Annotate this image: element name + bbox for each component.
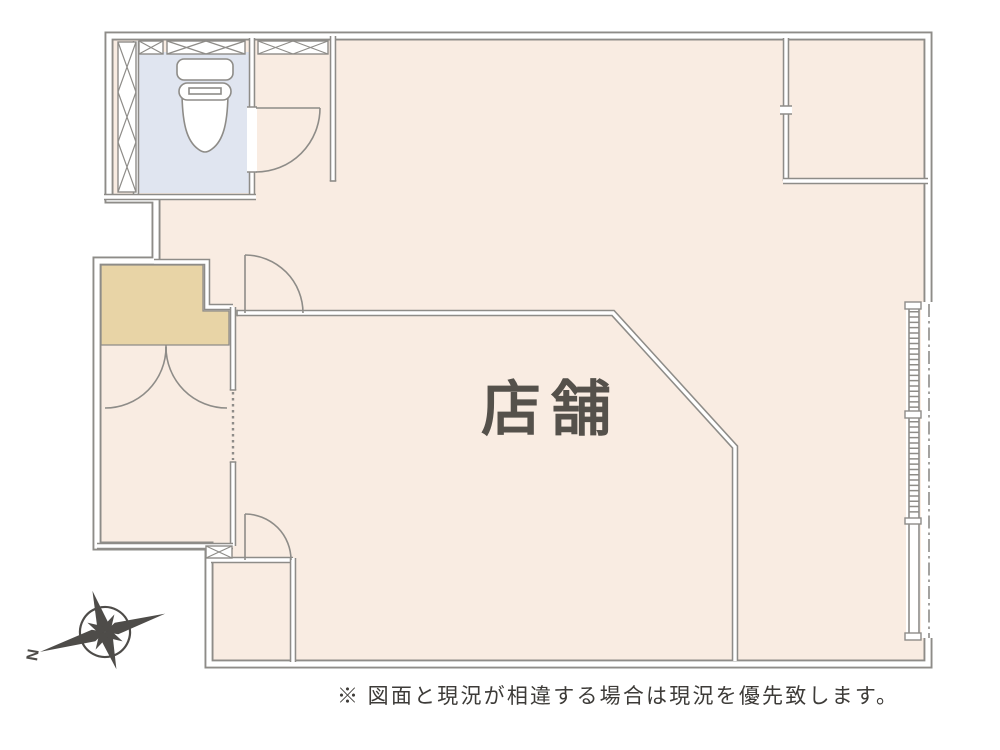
corridor-wall (330, 36, 337, 181)
shop-room-label: 店舗 (481, 377, 621, 443)
compass-rose-icon: N (24, 572, 177, 689)
beam-hatch-bands (139, 41, 328, 54)
compass-north-label: N (24, 648, 43, 662)
beam-box-small (206, 546, 232, 558)
pipe-shaft-hatch (118, 42, 136, 192)
floor-plan-drawing: 店舗 N ※ 図面と現況が相違する場合は現況を優先致します。 (0, 0, 1000, 750)
disclaimer-text: ※ 図面と現況が相違する場合は現況を優先致します。 (337, 684, 899, 708)
floor-plan-page: 店舗 N ※ 図面と現況が相違する場合は現況を優先致します。 (0, 0, 1000, 750)
